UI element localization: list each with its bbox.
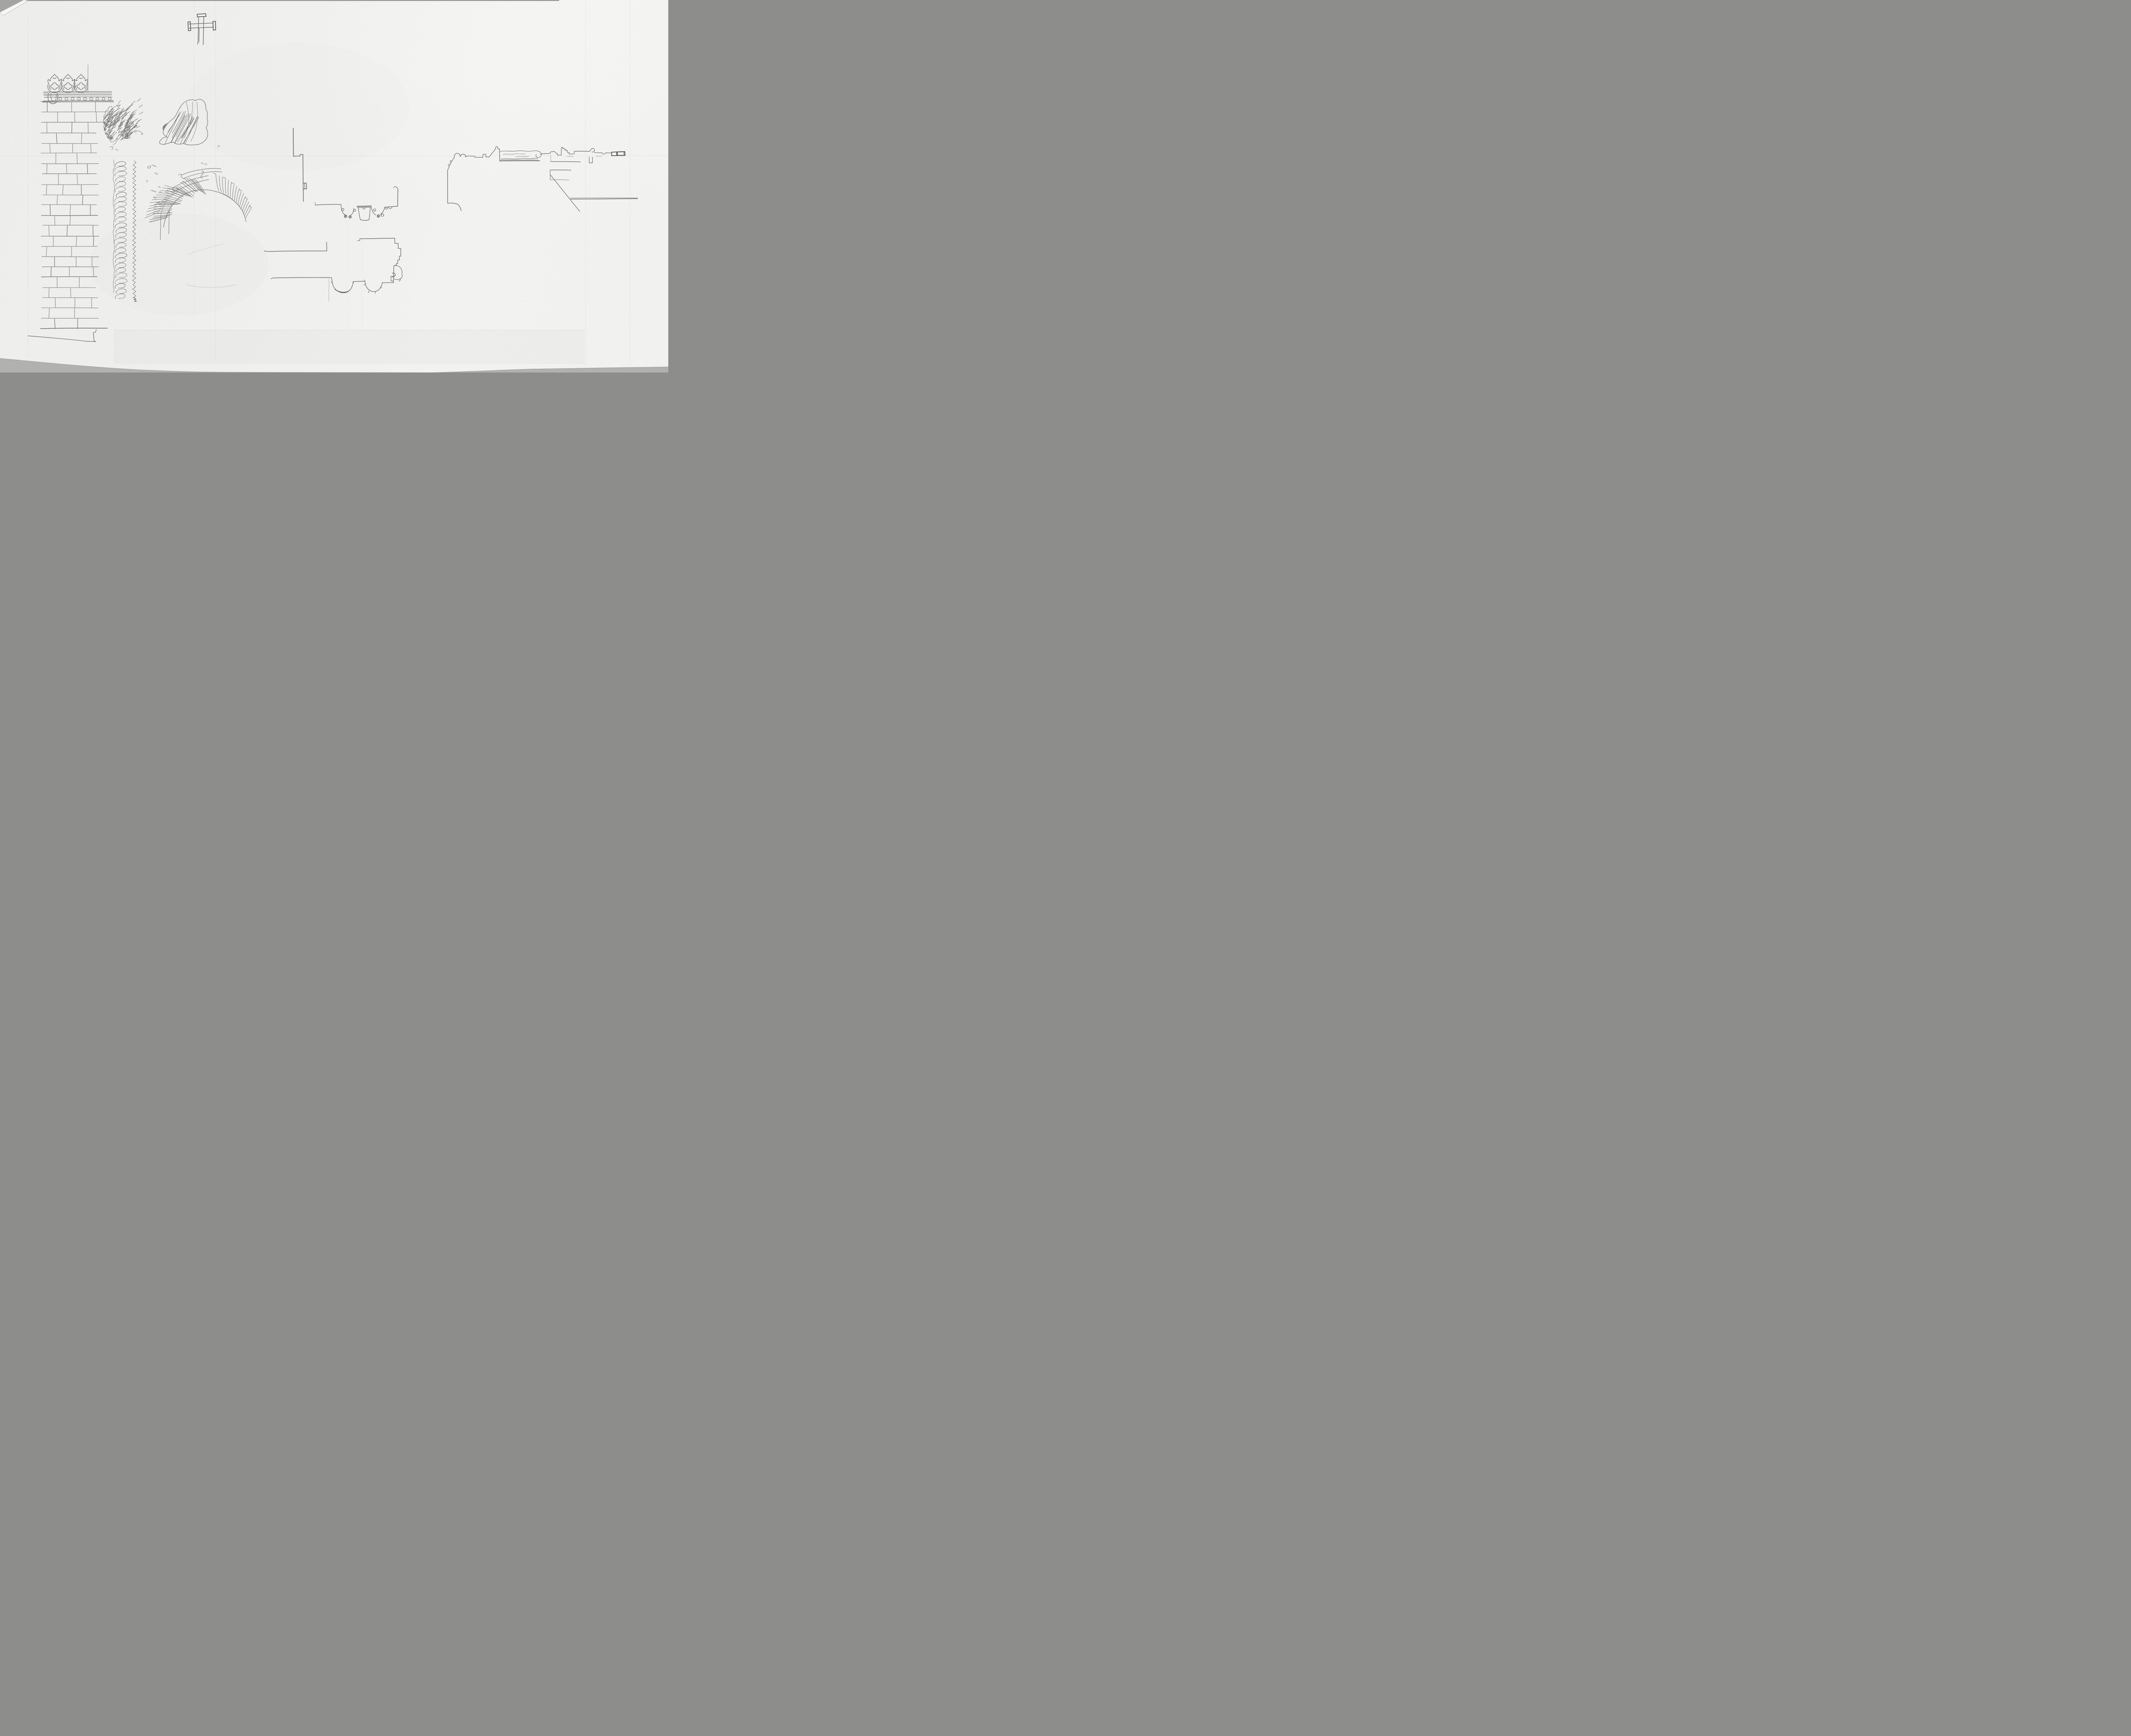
paper-creases-stroke bbox=[0, 156, 668, 156]
bead-molding-profile-stroke bbox=[315, 202, 315, 205]
brick-joint bbox=[75, 113, 75, 122]
brick-joint bbox=[51, 267, 52, 277]
scanner-bed-top-strip bbox=[0, 0, 559, 1]
course-line bbox=[42, 112, 110, 112]
voussoir-hatch-outer bbox=[156, 195, 170, 195]
scanned-sketch-page: Architectural detail studies: masonry pi… bbox=[0, 0, 668, 373]
brick-joint bbox=[81, 133, 82, 143]
brick-joint bbox=[72, 123, 72, 133]
brick-joint bbox=[93, 225, 93, 236]
brick-joint bbox=[49, 288, 49, 298]
paper-creases-stroke bbox=[630, 0, 630, 364]
paper-background-stroke bbox=[0, 0, 668, 373]
brick-joint bbox=[88, 123, 89, 133]
right-cornice-profile-stroke bbox=[550, 180, 569, 180]
course-line bbox=[43, 195, 98, 195]
paper-creases-stroke bbox=[216, 0, 216, 363]
course-line bbox=[41, 153, 97, 153]
course-line bbox=[42, 257, 99, 257]
right-cornice-profile-stroke bbox=[570, 198, 638, 198]
brick-joint bbox=[50, 205, 50, 215]
stone-cross-stroke bbox=[199, 28, 199, 42]
brick-joint bbox=[79, 277, 80, 288]
right-cornice-profile-stroke bbox=[500, 149, 500, 161]
brick-joint bbox=[50, 144, 50, 153]
jamb-step-profile-stroke bbox=[293, 128, 294, 156]
paper-background bbox=[0, 0, 668, 373]
paper-creases-stroke bbox=[194, 0, 194, 316]
carved-leaf-band-stroke bbox=[500, 160, 538, 160]
brick-joint bbox=[47, 164, 47, 173]
brick-joint bbox=[47, 123, 47, 133]
brick-joint bbox=[76, 257, 76, 266]
right-cornice-profile-stroke bbox=[551, 162, 580, 162]
shade-band bbox=[114, 330, 585, 364]
bead-molding-profile-stroke bbox=[357, 207, 371, 208]
right-cornice-profile-stroke bbox=[550, 170, 571, 170]
carved-leaf-band-stroke bbox=[500, 161, 540, 161]
brick-joint bbox=[55, 298, 55, 308]
sketch-canvas bbox=[0, 0, 668, 373]
brick-joint bbox=[93, 237, 94, 246]
brick-joint bbox=[55, 216, 55, 225]
bead-molding-profile-stroke bbox=[357, 206, 371, 206]
brick-joint bbox=[71, 288, 71, 298]
brick-joint bbox=[58, 174, 59, 185]
brick-joint bbox=[75, 308, 75, 318]
